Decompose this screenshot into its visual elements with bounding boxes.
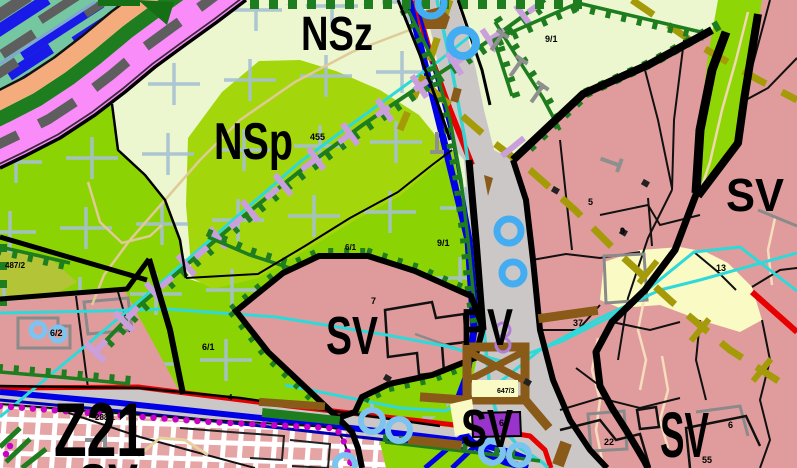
- svg-text:9: 9: [620, 226, 625, 236]
- svg-text:NSp: NSp: [214, 113, 293, 171]
- svg-text:NSz: NSz: [301, 8, 373, 61]
- svg-text:7: 7: [371, 296, 376, 306]
- svg-text:PV: PV: [461, 299, 513, 357]
- svg-text:6/1: 6/1: [202, 342, 215, 352]
- svg-text:6/1: 6/1: [345, 243, 357, 252]
- svg-text:5: 5: [588, 197, 593, 207]
- svg-text:4: 4: [228, 393, 233, 402]
- svg-text:22: 22: [604, 437, 614, 447]
- svg-text:SV: SV: [461, 399, 513, 459]
- svg-text:6: 6: [499, 418, 504, 428]
- svg-text:55: 55: [702, 455, 712, 465]
- svg-text:6/2: 6/2: [50, 328, 63, 338]
- svg-text:SV: SV: [326, 306, 378, 366]
- svg-text:37: 37: [573, 318, 583, 328]
- svg-text:487/2: 487/2: [5, 261, 26, 270]
- svg-text:9/1: 9/1: [437, 238, 450, 248]
- svg-text:9/1: 9/1: [545, 34, 558, 44]
- svg-text:13: 13: [716, 263, 726, 273]
- svg-text:455: 455: [310, 132, 325, 142]
- svg-text:SV: SV: [78, 452, 138, 468]
- svg-text:647/3: 647/3: [497, 388, 515, 395]
- svg-text:SV: SV: [726, 169, 784, 221]
- svg-text:6: 6: [728, 420, 733, 430]
- svg-text:288/1: 288/1: [95, 413, 116, 422]
